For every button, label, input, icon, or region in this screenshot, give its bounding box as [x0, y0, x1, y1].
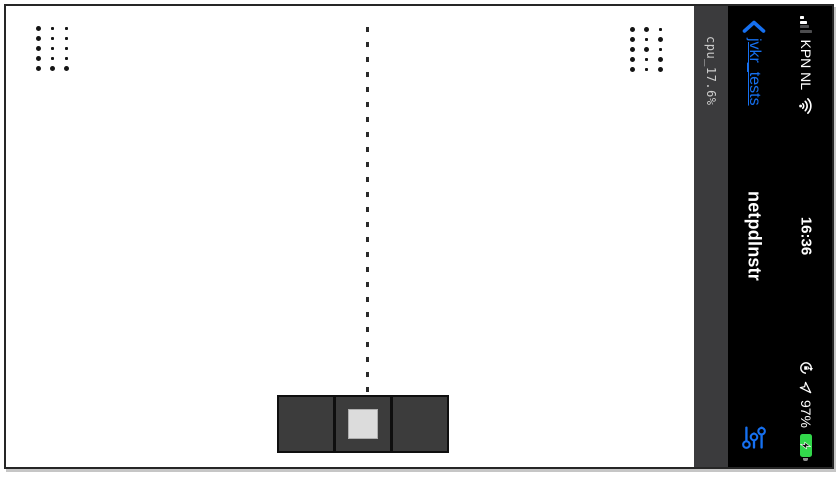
- device-frame: cpu_17.6% jvkr_tests netpdlnstr: [4, 4, 834, 469]
- dot-small: [51, 27, 53, 29]
- dot-grid-right: [630, 27, 663, 72]
- dot-large: [658, 37, 663, 42]
- dot-small: [659, 48, 661, 50]
- navigation-bar: jvkr_tests netpdlnstr: [728, 6, 780, 467]
- cellular-signal-icon: [800, 16, 812, 33]
- dot-large: [630, 67, 635, 72]
- back-button[interactable]: jvkr_tests: [742, 6, 766, 106]
- right-black-panel: jvkr_tests netpdlnstr: [728, 6, 832, 467]
- dot-small: [51, 47, 53, 49]
- sliders-icon: [740, 423, 768, 451]
- back-chevron-icon: [742, 20, 766, 33]
- paddle[interactable]: [277, 395, 449, 453]
- dot-small: [65, 47, 67, 49]
- center-dashed-line: [366, 27, 369, 398]
- clock-time: 16:36: [798, 217, 815, 255]
- dot-large: [630, 37, 635, 42]
- dot-large: [64, 66, 69, 71]
- dot-small: [645, 58, 647, 60]
- location-arrow-icon: [800, 381, 813, 394]
- filters-button[interactable]: [740, 423, 768, 466]
- dot-small: [659, 28, 661, 30]
- dot-large: [658, 67, 663, 72]
- dot-small: [51, 57, 53, 59]
- dot-grid-left: [36, 26, 69, 71]
- dot-small: [65, 37, 67, 39]
- cpu-overlay-strip: cpu_17.6%: [694, 6, 728, 467]
- dot-large: [36, 66, 41, 71]
- dot-large: [644, 27, 649, 32]
- orientation-lock-icon: [799, 361, 813, 375]
- back-link-label: jvkr_tests: [745, 38, 763, 106]
- dot-large: [644, 47, 649, 52]
- nav-title: netpdlnstr: [744, 191, 765, 281]
- dot-large: [36, 46, 41, 51]
- status-bar: KPN NL 16:36: [780, 6, 832, 467]
- ball-square: [348, 409, 378, 439]
- carrier-label: KPN NL: [798, 40, 814, 91]
- dot-large: [630, 27, 635, 32]
- cpu-usage-label: cpu_17.6%: [704, 6, 718, 106]
- game-area: [6, 6, 694, 467]
- dot-small: [645, 38, 647, 40]
- dot-large: [36, 56, 41, 61]
- dot-large: [36, 26, 41, 31]
- dot-small: [65, 27, 67, 29]
- dot-large: [36, 36, 41, 41]
- wifi-icon: [799, 97, 813, 115]
- paddle-left-segment[interactable]: [277, 395, 335, 453]
- battery-percent-label: 97%: [798, 400, 814, 428]
- paddle-right-segment[interactable]: [391, 395, 449, 453]
- dot-large: [630, 47, 635, 52]
- dot-large: [630, 57, 635, 62]
- dot-large: [50, 66, 55, 71]
- dot-small: [65, 57, 67, 59]
- paddle-center-segment[interactable]: [334, 395, 392, 453]
- dot-large: [658, 57, 663, 62]
- battery-charging-icon: [800, 434, 812, 457]
- dot-small: [645, 68, 647, 70]
- dot-small: [51, 37, 53, 39]
